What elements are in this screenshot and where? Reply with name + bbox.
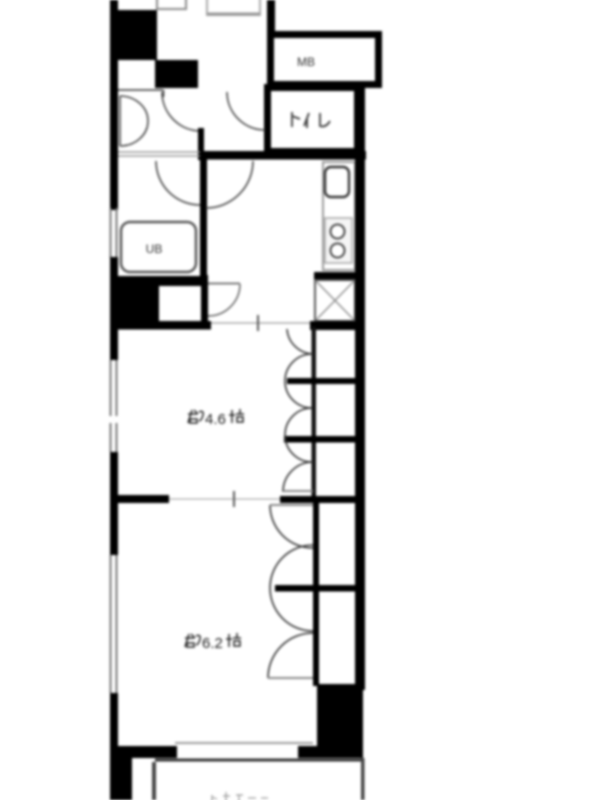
svg-text:UB: UB bbox=[146, 242, 163, 256]
svg-text:MB: MB bbox=[297, 55, 315, 69]
svg-text:6.2: 6.2 bbox=[202, 635, 223, 652]
svg-text:4.6: 4.6 bbox=[205, 411, 226, 428]
